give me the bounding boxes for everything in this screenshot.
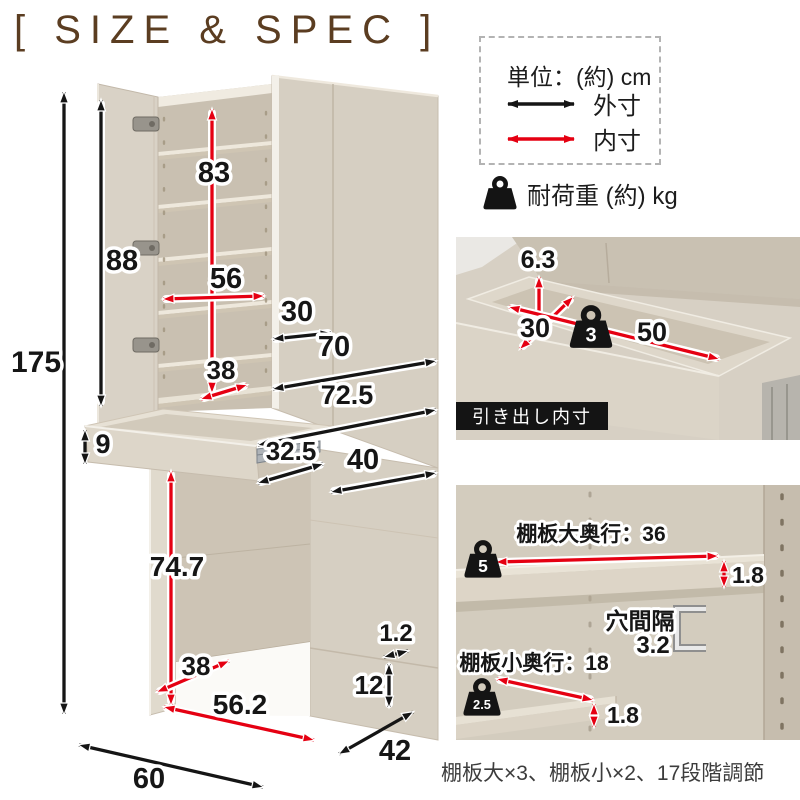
dim-knee-width: 56.2	[213, 689, 268, 720]
drawer-load-value: 3	[585, 325, 596, 347]
door-hinge-icon	[133, 117, 159, 131]
inner-dim-legend: 内寸	[501, 121, 641, 156]
inner-dim-arrow-icon	[501, 131, 581, 147]
shelf-large-load-value: 5	[478, 556, 488, 576]
size-spec-infographic: [ SIZE & SPEC ] 単位：(約) cm 外寸	[0, 0, 800, 800]
dim-door-width: 30	[281, 296, 313, 328]
dim-upper-total-width: 72.5	[321, 380, 374, 410]
dim-base-height: 12	[355, 670, 384, 700]
dim-panel-thickness: 1.2	[379, 620, 412, 647]
dim-upper-inner-height: 83	[198, 157, 230, 189]
dim-knee-height: 74.7	[150, 551, 205, 582]
shelf-small-depth-label: 棚板小奥行：18	[459, 651, 609, 675]
outer-dim-label: 外寸	[593, 86, 641, 121]
dim-total-height: 175	[11, 346, 61, 379]
dim-upper-side-depth: 40	[347, 444, 379, 476]
drawer-inner-width: 50	[637, 317, 667, 347]
drawer-inner-depth: 30	[520, 313, 550, 343]
dim-upper-inner-width: 56	[210, 263, 242, 295]
shelf-detail-panel: 5 2.5 棚板大奥行：36 1.8 穴間隔 3.2 棚板小奥行：18 1.8	[456, 485, 800, 740]
inner-dim-label: 内寸	[593, 121, 641, 156]
shelf-detail-image: 5 2.5 棚板大奥行：36 1.8 穴間隔 3.2 棚板小奥行：18 1.8	[456, 485, 800, 740]
arrow-upper-inner-width	[163, 296, 264, 299]
dim-upper-shelf-depth: 38	[207, 355, 236, 385]
arrow-base-width	[79, 745, 263, 787]
dim-door-height: 88	[106, 245, 138, 277]
load-label: 耐荷重 (約) kg	[527, 176, 678, 211]
cabinet-dimension-diagram: 175 88 83 56 30 38 70 72.5 9 32.5 40 74.…	[0, 0, 460, 800]
shelf-large-depth-label: 棚板大奥行：36	[516, 522, 665, 546]
dim-upper-front-width: 70	[318, 331, 350, 363]
hole-pitch-value: 3.2	[636, 632, 669, 659]
drawer-detail-panel: 3 6.3 30 50 引き出し内寸	[456, 237, 800, 440]
shelf-large-thickness: 1.8	[732, 562, 764, 588]
shelf-small-thickness: 1.8	[607, 702, 639, 728]
shelf-small-load-value: 2.5	[473, 697, 491, 712]
door-hinge-icon	[133, 338, 159, 352]
outer-dim-legend: 外寸	[501, 86, 641, 121]
kettlebell-icon	[482, 174, 518, 212]
drawer-inner-height: 6.3	[521, 246, 556, 274]
unit-legend-box: 単位：(約) cm 外寸 内寸	[479, 36, 661, 165]
dim-knee-depth: 38	[182, 651, 211, 681]
hole-pitch-label: 穴間隔	[606, 608, 675, 634]
dim-drawer-front-height: 9	[95, 429, 110, 459]
dim-total-depth: 42	[379, 735, 411, 767]
outer-dim-arrow-icon	[501, 96, 581, 112]
dim-drawer-depth: 32.5	[266, 436, 317, 466]
load-legend: 耐荷重 (約) kg	[482, 174, 678, 212]
dim-base-width: 60	[133, 763, 165, 795]
shelf-footnote: 棚板大×3、棚板小×2、17段階調節	[441, 757, 800, 787]
drawer-panel-caption: 引き出し内寸	[456, 402, 608, 430]
